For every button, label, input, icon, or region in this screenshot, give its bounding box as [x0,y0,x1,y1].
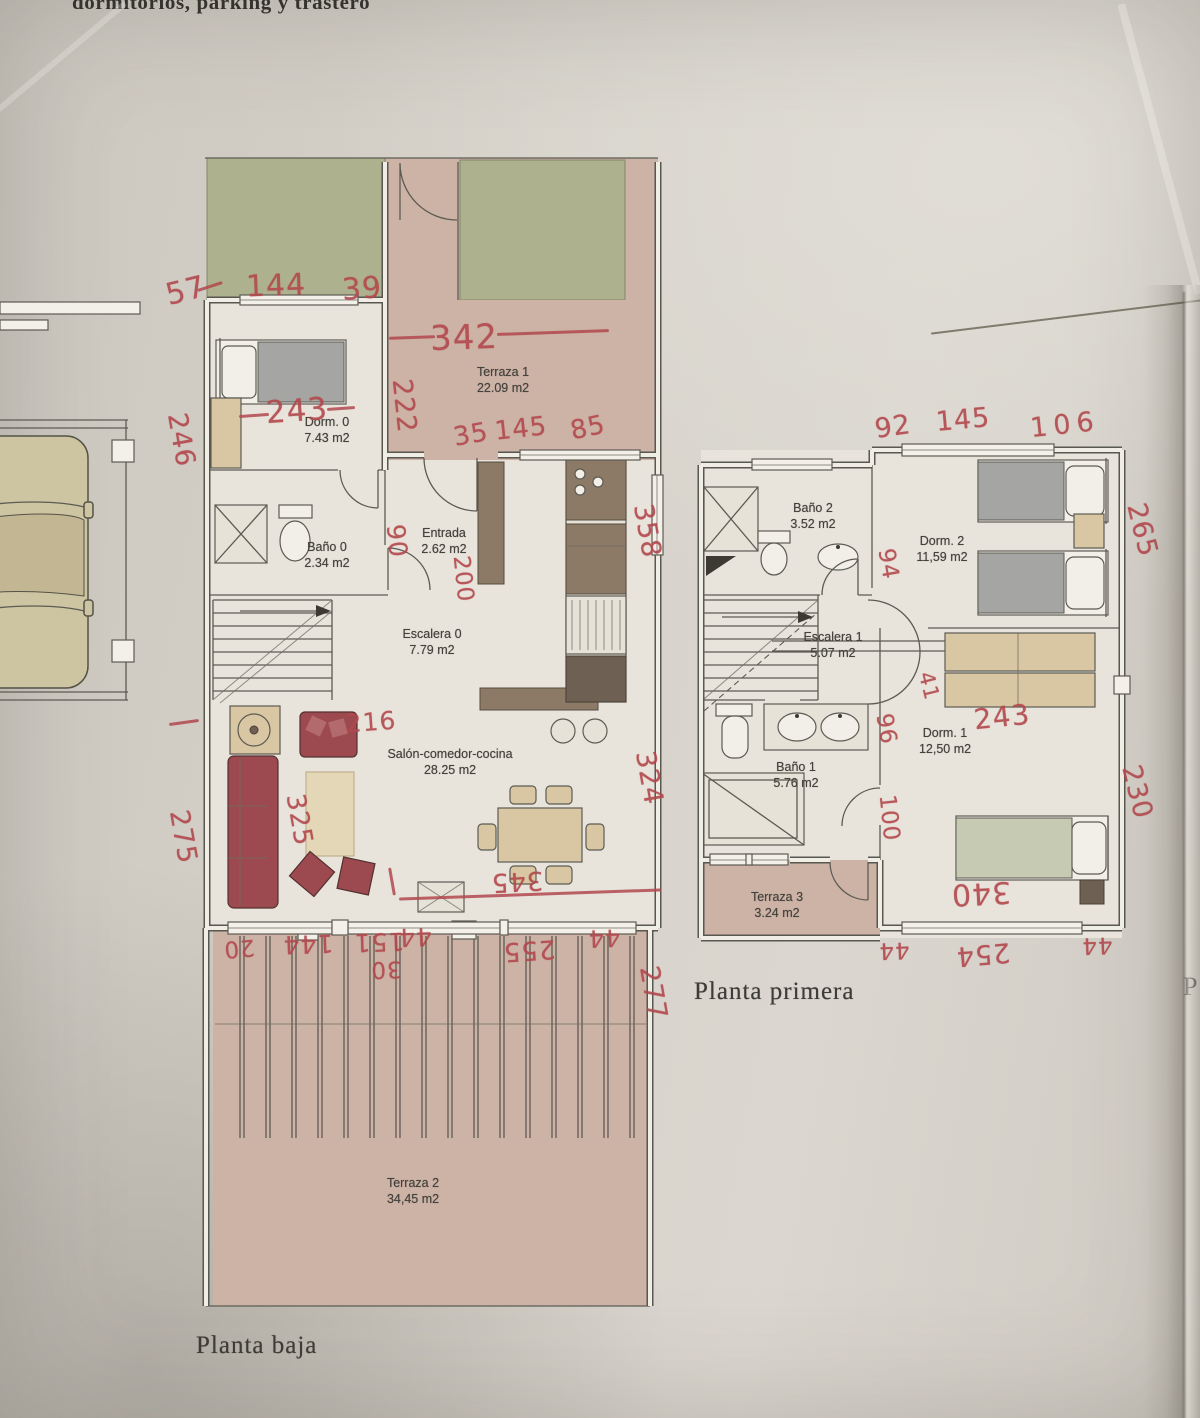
room-label-terraza-1: Terraza 122.09 m2 [477,364,529,396]
caption-planta-primera: Planta primera [694,978,854,1006]
car [0,436,93,688]
floor-plans-drawing [0,0,1200,1418]
room-label-bano-0: Baño 02.34 m2 [304,539,349,571]
garden-right [460,160,625,300]
room-label-escalera-0: Escalera 07.79 m2 [402,626,461,658]
loveseat [300,712,357,757]
planta-baja-drawing [205,158,663,1306]
room-label-salon: Salón-comedor-cocina28.25 m2 [387,746,512,778]
room-label-dorm-0: Dorm. 07.43 m2 [304,414,349,446]
caption-planta-baja: Planta baja [196,1332,317,1360]
shower-bano-0 [215,505,267,563]
side-table [230,706,280,754]
room-label-terraza-2: Terraza 234,45 m2 [387,1175,439,1207]
room-label-terraza-3: Terraza 33.24 m2 [751,889,803,921]
wardrobe-dorm-1 [945,633,1095,707]
cutoff-caption-letter: P [1183,972,1197,1002]
garage-parking [0,302,140,700]
cabinet-dorm-0 [211,398,241,468]
tv-bench [418,882,464,912]
toilet-bano-2 [758,531,790,575]
room-label-bano-2: Baño 23.52 m2 [790,500,835,532]
room-label-bano-1: Baño 15.76 m2 [773,759,818,791]
room-label-dorm-2: Dorm. 211,59 m2 [916,533,967,565]
shower-bano-2 [704,487,758,551]
garden-left [207,158,385,300]
terraza-2-floor [213,928,650,1306]
room-label-dorm-1: Dorm. 112,50 m2 [919,725,971,757]
double-sink-bano-1 [764,704,868,750]
planta-primera-drawing [701,444,1130,938]
sink-bano-2 [818,544,858,570]
room-label-entrada: Entrada2.62 m2 [421,525,466,557]
floor-plan-photo: dormitorios, parking y trastero [0,0,1200,1418]
rug [306,772,354,856]
bed-dorm-0 [216,338,346,406]
room-label-escalera-1: Escalera 15.07 m2 [803,629,862,661]
sofa [228,756,278,908]
